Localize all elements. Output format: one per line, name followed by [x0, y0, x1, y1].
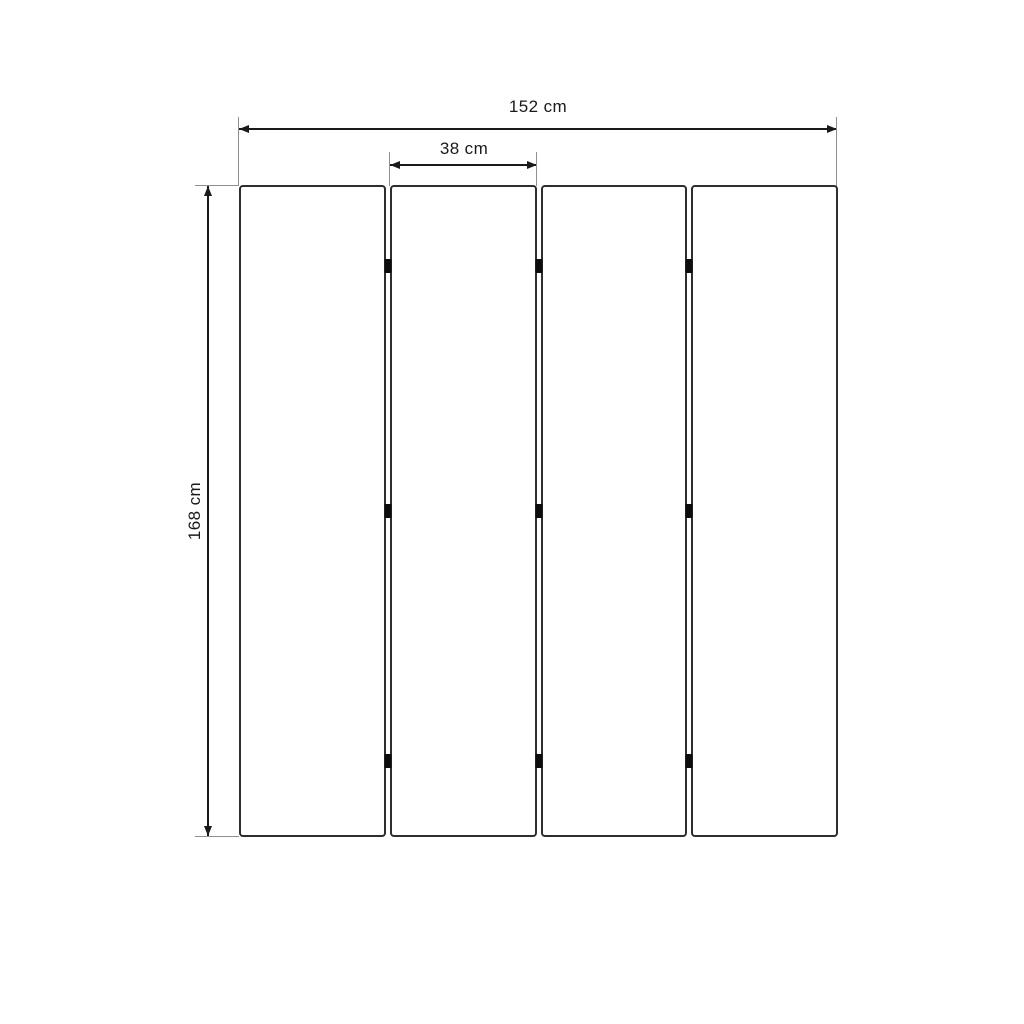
panel-4: [691, 185, 838, 837]
hinge: [535, 504, 542, 518]
height-extension-line-top: [195, 185, 239, 186]
total-width-extension-line-left: [238, 117, 239, 186]
height-dimension-line: [207, 186, 209, 836]
arrow-left-icon: [239, 125, 249, 133]
arrow-left-icon: [390, 161, 400, 169]
hinge: [384, 504, 391, 518]
hinge: [686, 259, 693, 273]
hinge: [535, 259, 542, 273]
panel-width-extension-line-left: [389, 152, 390, 186]
panel-width-dimension-label: 38 cm: [440, 139, 488, 159]
dimension-drawing: 152 cm 38 cm 168 cm: [0, 0, 1024, 1024]
total-width-extension-line-right: [836, 117, 837, 186]
hinge: [686, 754, 693, 768]
height-extension-line-bottom: [195, 836, 239, 837]
height-dimension-label: 168 cm: [185, 482, 205, 540]
hinge: [384, 754, 391, 768]
hinge: [535, 754, 542, 768]
hinge: [384, 259, 391, 273]
panel-3: [541, 185, 688, 837]
total-width-dimension-line: [239, 128, 837, 130]
total-width-dimension-label: 152 cm: [509, 97, 567, 117]
panel-1: [239, 185, 386, 837]
arrow-up-icon: [204, 186, 212, 196]
panel-2: [390, 185, 537, 837]
arrow-down-icon: [204, 826, 212, 836]
panel-width-extension-line-right: [536, 152, 537, 186]
panels-row: [239, 185, 838, 837]
hinge: [686, 504, 693, 518]
panel-width-dimension-line: [390, 164, 537, 166]
